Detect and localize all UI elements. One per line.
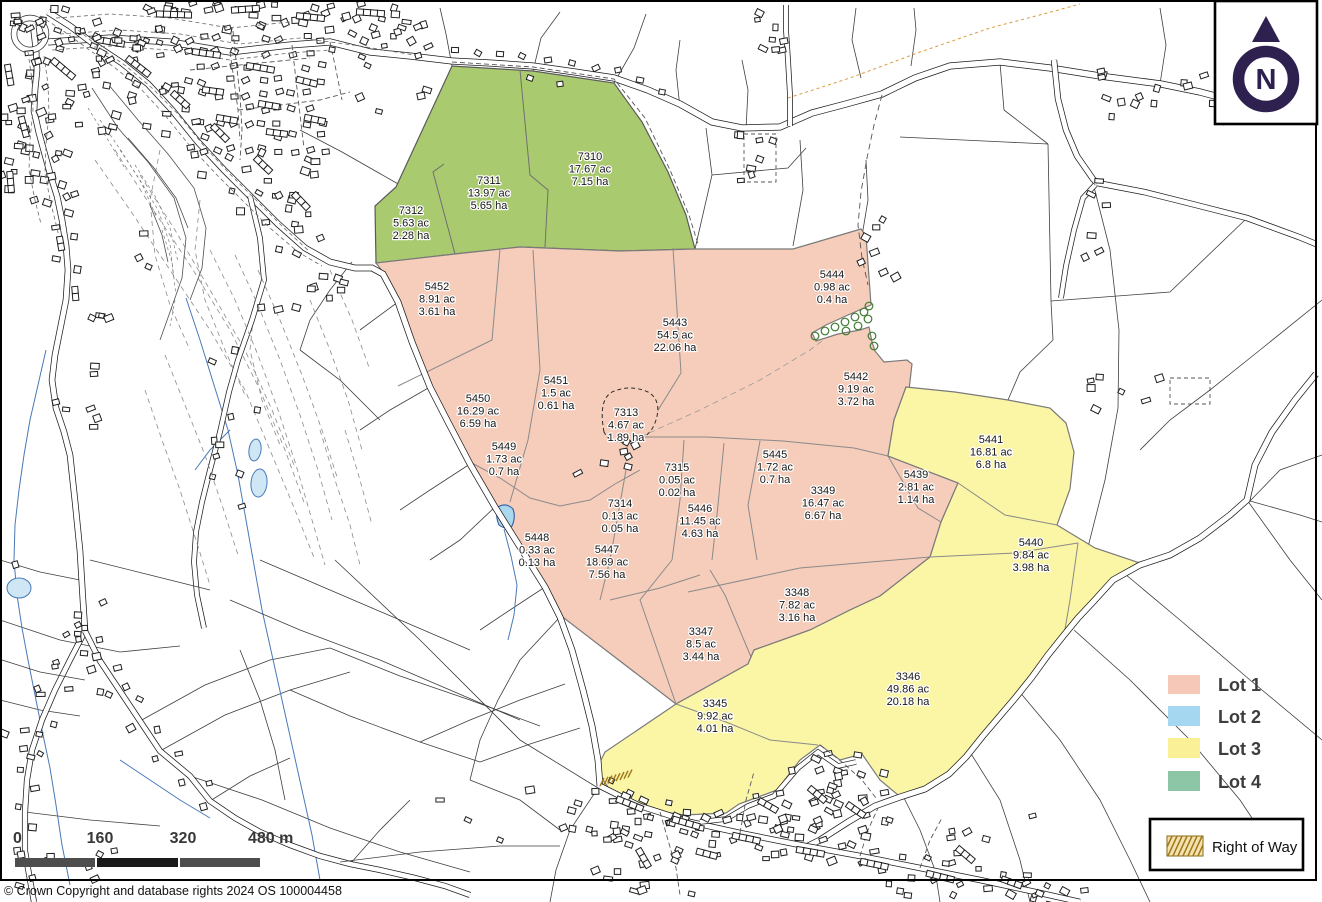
svg-text:5448: 5448	[525, 532, 549, 544]
svg-text:54.5 ac: 54.5 ac	[657, 330, 694, 342]
svg-text:3348: 3348	[785, 587, 809, 599]
svg-text:9.92 ac: 9.92 ac	[697, 711, 734, 723]
svg-text:22.06 ha: 22.06 ha	[654, 342, 698, 354]
svg-text:0.61 ha: 0.61 ha	[538, 400, 576, 412]
svg-text:5449: 5449	[492, 441, 516, 453]
svg-text:0.7 ha: 0.7 ha	[760, 474, 791, 486]
svg-text:0.98 ac: 0.98 ac	[814, 282, 851, 294]
svg-text:Lot 1: Lot 1	[1218, 675, 1261, 695]
svg-text:3346: 3346	[896, 671, 920, 683]
svg-text:5.63 ac: 5.63 ac	[393, 218, 430, 230]
svg-text:3.44 ha: 3.44 ha	[683, 651, 721, 663]
svg-text:16.47 ac: 16.47 ac	[802, 498, 845, 510]
svg-text:11.45 ac: 11.45 ac	[679, 516, 721, 528]
svg-text:3.16 ha: 3.16 ha	[779, 612, 817, 624]
svg-text:9.84 ac: 9.84 ac	[1013, 550, 1050, 562]
svg-text:0.05 ac: 0.05 ac	[659, 475, 696, 487]
svg-text:5439: 5439	[904, 469, 928, 481]
svg-text:5440: 5440	[1019, 537, 1043, 549]
svg-text:3345: 3345	[703, 698, 727, 710]
svg-text:0.02 ha: 0.02 ha	[659, 487, 697, 499]
svg-text:5443: 5443	[663, 317, 687, 329]
svg-text:5444: 5444	[820, 269, 844, 281]
svg-text:3.72 ha: 3.72 ha	[838, 396, 876, 408]
svg-text:5442: 5442	[844, 371, 868, 383]
svg-text:320: 320	[170, 830, 197, 847]
svg-text:0.7 ha: 0.7 ha	[489, 466, 520, 478]
svg-text:20.18 ha: 20.18 ha	[887, 696, 931, 708]
svg-text:0.33 ac: 0.33 ac	[519, 545, 556, 557]
svg-text:2.28 ha: 2.28 ha	[393, 230, 431, 242]
svg-text:5441: 5441	[979, 434, 1003, 446]
svg-text:3.61 ha: 3.61 ha	[419, 306, 457, 318]
svg-text:5450: 5450	[466, 393, 490, 405]
svg-text:9.19 ac: 9.19 ac	[838, 384, 875, 396]
svg-text:480 m: 480 m	[248, 830, 293, 847]
svg-text:7.82 ac: 7.82 ac	[779, 600, 816, 612]
svg-text:6.8 ha: 6.8 ha	[976, 459, 1007, 471]
svg-text:6.59 ha: 6.59 ha	[460, 418, 498, 430]
svg-text:7311: 7311	[477, 175, 501, 187]
svg-text:Right of Way: Right of Way	[1212, 839, 1298, 856]
svg-text:0.05 ha: 0.05 ha	[602, 523, 640, 535]
svg-text:0.13 ha: 0.13 ha	[519, 557, 557, 569]
svg-text:5452: 5452	[425, 281, 449, 293]
svg-text:17.67 ac: 17.67 ac	[569, 164, 612, 176]
svg-text:7310: 7310	[578, 151, 602, 163]
svg-text:8.5 ac: 8.5 ac	[686, 639, 716, 651]
svg-text:16.29 ac: 16.29 ac	[457, 406, 500, 418]
svg-text:5.65 ha: 5.65 ha	[471, 200, 509, 212]
svg-text:7312: 7312	[399, 205, 423, 217]
svg-text:7.56 ha: 7.56 ha	[589, 569, 627, 581]
svg-text:Lot 4: Lot 4	[1218, 772, 1261, 792]
svg-text:5445: 5445	[763, 449, 787, 461]
svg-text:3347: 3347	[689, 626, 713, 638]
svg-text:N: N	[1256, 64, 1277, 96]
svg-text:© Crown Copyright and database: © Crown Copyright and database rights 20…	[4, 884, 342, 898]
svg-text:6.67 ha: 6.67 ha	[805, 510, 843, 522]
svg-text:160: 160	[87, 830, 114, 847]
svg-text:1.73 ac: 1.73 ac	[486, 454, 523, 466]
svg-text:0.13 ac: 0.13 ac	[602, 511, 639, 523]
svg-text:8.91 ac: 8.91 ac	[419, 294, 456, 306]
svg-text:7314: 7314	[608, 498, 632, 510]
svg-text:49.86 ac: 49.86 ac	[887, 684, 930, 696]
svg-text:Lot 3: Lot 3	[1218, 739, 1261, 759]
svg-text:13.97 ac: 13.97 ac	[468, 188, 511, 200]
svg-text:18.69 ac: 18.69 ac	[586, 557, 629, 569]
svg-text:1.5 ac: 1.5 ac	[541, 388, 571, 400]
svg-text:Lot 2: Lot 2	[1218, 707, 1261, 727]
svg-text:16.81 ac: 16.81 ac	[970, 447, 1013, 459]
svg-text:0: 0	[13, 830, 22, 847]
svg-text:1.72 ac: 1.72 ac	[757, 462, 794, 474]
svg-text:3349: 3349	[811, 485, 835, 497]
svg-text:7.15 ha: 7.15 ha	[572, 176, 610, 188]
svg-text:4.63 ha: 4.63 ha	[682, 528, 720, 540]
svg-text:7315: 7315	[665, 462, 689, 474]
svg-text:4.67 ac: 4.67 ac	[608, 420, 645, 432]
svg-text:5446: 5446	[688, 503, 712, 515]
svg-text:3.98 ha: 3.98 ha	[1013, 562, 1051, 574]
svg-text:0.4 ha: 0.4 ha	[817, 294, 848, 306]
svg-text:1.89 ha: 1.89 ha	[608, 432, 646, 444]
svg-text:5451: 5451	[544, 375, 568, 387]
svg-text:7313: 7313	[614, 407, 638, 419]
svg-text:1.14 ha: 1.14 ha	[898, 494, 936, 506]
svg-text:5447: 5447	[595, 544, 619, 556]
svg-text:4.01 ha: 4.01 ha	[697, 723, 735, 735]
svg-text:2.81 ac: 2.81 ac	[898, 482, 935, 494]
